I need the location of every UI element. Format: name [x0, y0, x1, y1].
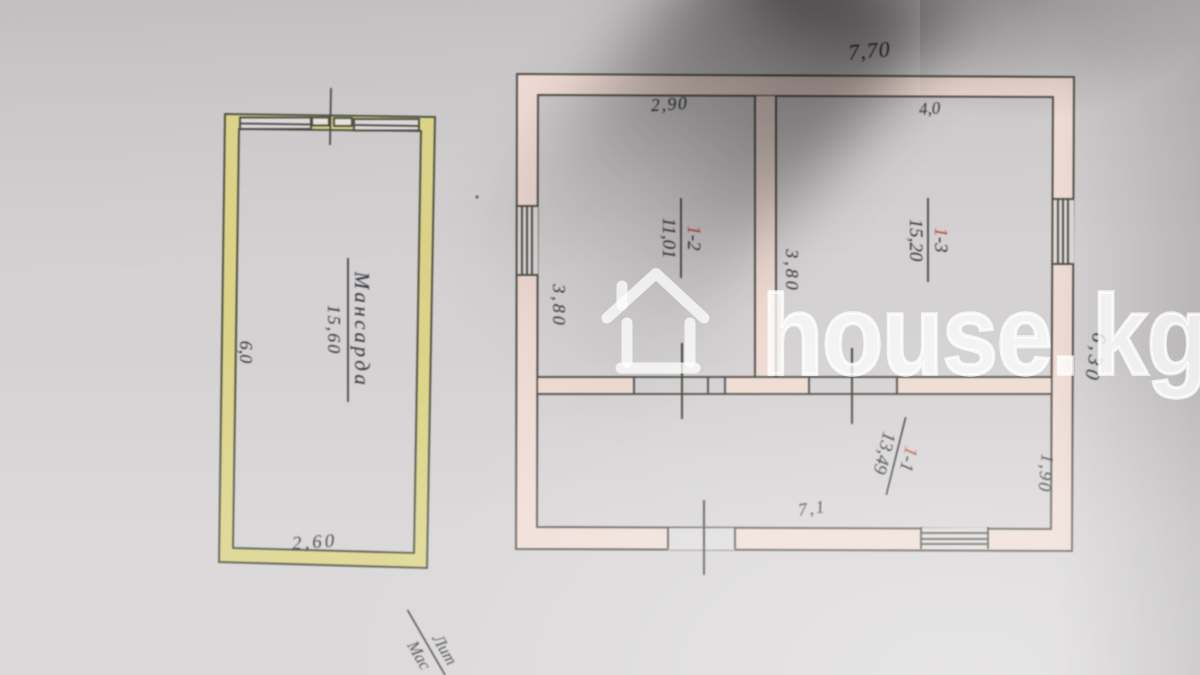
svg-text:house.kg: house.kg	[762, 271, 1200, 398]
